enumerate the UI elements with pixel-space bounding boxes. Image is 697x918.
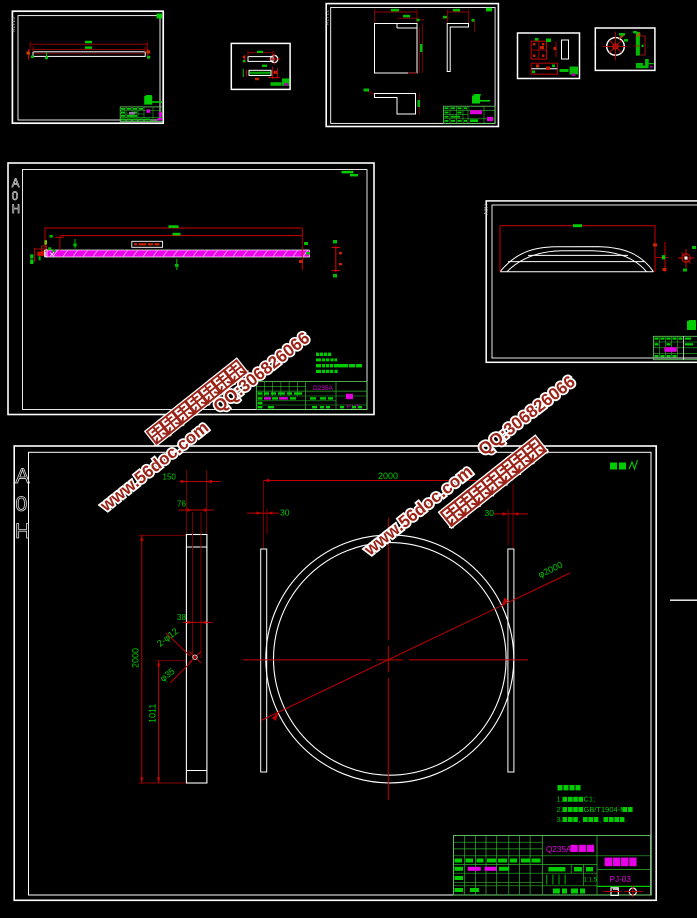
svg-text:.: . — [625, 815, 627, 824]
svg-text:1:1.5: 1:1.5 — [584, 878, 598, 884]
svg-text:H: H — [15, 520, 30, 543]
svg-text:150: 150 — [163, 473, 177, 482]
svg-text:A: A — [16, 465, 30, 488]
svg-text:76: 76 — [177, 500, 186, 509]
svg-text:38: 38 — [177, 613, 186, 622]
svg-text:2000: 2000 — [131, 648, 141, 668]
svg-text:2000: 2000 — [378, 471, 398, 481]
svg-text:,: , — [599, 815, 601, 824]
svg-text:H: H — [12, 204, 20, 216]
svg-text:30: 30 — [485, 508, 495, 518]
svg-text:0: 0 — [16, 493, 28, 516]
svg-text:A1713: A1713 — [11, 16, 16, 32]
svg-text:PJ-03: PJ-03 — [610, 875, 632, 884]
svg-text:Q235A/: Q235A/ — [546, 845, 574, 854]
svg-text:D235A: D235A — [313, 385, 334, 392]
svg-text:3.: 3. — [557, 815, 563, 824]
svg-text:GB/T1904-M: GB/T1904-M — [584, 805, 627, 814]
svg-text:C1;: C1; — [584, 795, 596, 804]
svg-text:,: , — [579, 815, 581, 824]
svg-text:A1712: A1712 — [325, 9, 330, 25]
svg-text:A: A — [12, 178, 20, 190]
svg-text:1011: 1011 — [148, 704, 158, 723]
svg-text:1.: 1. — [557, 795, 563, 804]
svg-text:0: 0 — [12, 191, 18, 203]
svg-text:2.: 2. — [557, 805, 563, 814]
svg-text:30: 30 — [280, 508, 290, 518]
svg-text:A0H: A0H — [484, 204, 490, 215]
